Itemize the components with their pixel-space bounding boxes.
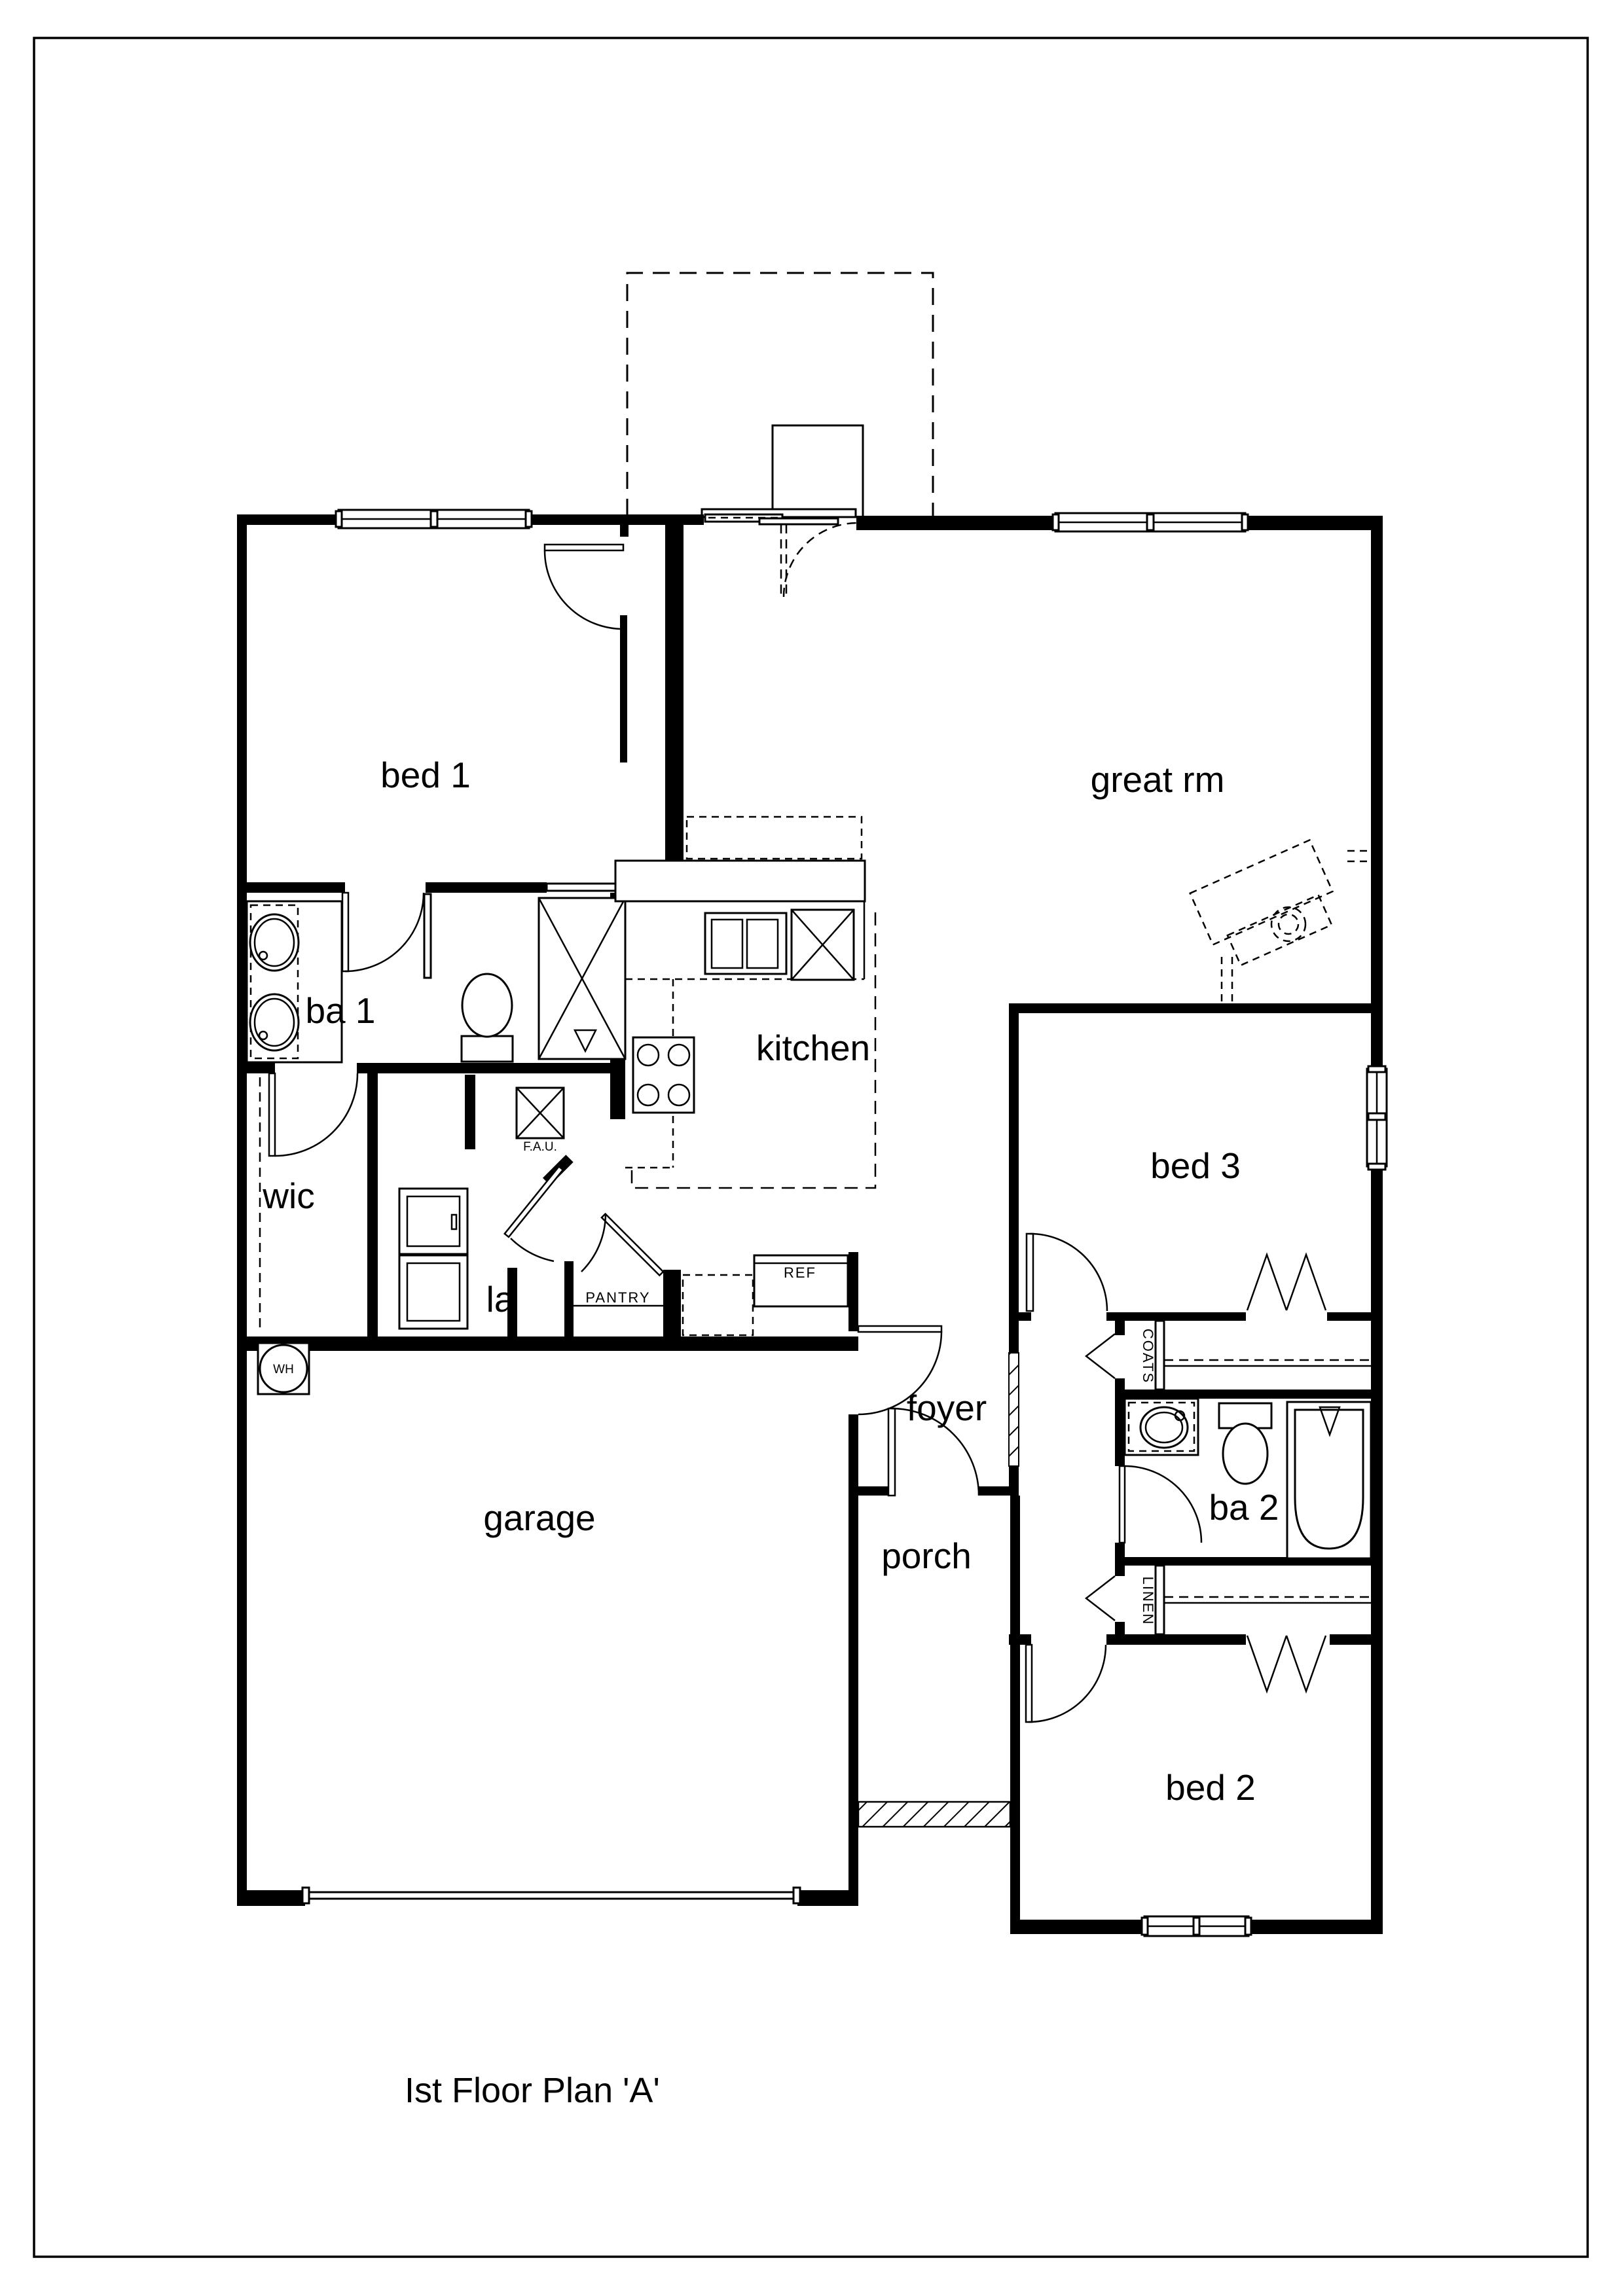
label-fau: F.A.U. — [523, 1140, 557, 1154]
wall-bed3-bottom — [1009, 1312, 1031, 1321]
bifold-bed3-closet — [1247, 1255, 1326, 1310]
kitchen-sink — [705, 913, 786, 974]
ba1-toilet — [462, 974, 513, 1062]
fireplace-optional — [1190, 840, 1371, 1003]
cased-opening-hatched — [1009, 1353, 1019, 1466]
rear-sliding-door — [705, 514, 858, 597]
door-nook-rear — [545, 545, 623, 629]
kitchen-range — [633, 1037, 694, 1113]
wall-coats — [1115, 1378, 1125, 1390]
wall-linen — [1115, 1622, 1125, 1634]
bifold-coats — [1086, 1334, 1115, 1378]
exterior-wall-left — [237, 514, 247, 1906]
wall-ba1-bottom — [247, 1063, 275, 1073]
exterior-wall — [856, 516, 1058, 530]
exterior-wall-right — [1371, 1166, 1383, 1934]
label-bed3: bed 3 — [1150, 1145, 1241, 1186]
wall-stub-nook — [620, 615, 627, 762]
exterior-wall-bed2-bottom — [1010, 1920, 1147, 1934]
ba2-toilet — [1219, 1403, 1271, 1484]
door-bed3 — [1027, 1234, 1107, 1311]
wall-linen — [1115, 1566, 1125, 1576]
washer-dryer — [399, 1189, 467, 1329]
ba1-vanity — [247, 901, 342, 1062]
window-bed1 — [336, 510, 532, 528]
label-bed2: bed 2 — [1165, 1767, 1256, 1808]
garage-door — [302, 1888, 800, 1903]
floor-plan-drawing: bed 1 great rm ba 1 kitchen wic la bed 3… — [0, 0, 1623, 2296]
label-ba1: ba 1 — [305, 990, 375, 1031]
label-ba2: ba 2 — [1209, 1487, 1279, 1528]
wall-garage-top — [247, 1336, 858, 1351]
window-bed3 — [1367, 1066, 1387, 1170]
label-wic: wic — [262, 1175, 314, 1216]
label-ref: REF — [784, 1265, 816, 1281]
exterior-wall-garage-bottom — [797, 1890, 858, 1906]
refrigerator — [683, 1255, 848, 1335]
label-la: la — [486, 1279, 515, 1319]
ref-recess-dashed — [683, 1275, 753, 1335]
fau-unit — [517, 1088, 564, 1138]
label-linen: LINEN — [1140, 1577, 1156, 1626]
wall-bed2-top — [1330, 1634, 1371, 1645]
kitchen-counters — [615, 817, 865, 1168]
window-bed2 — [1142, 1916, 1251, 1936]
wall-bed3-top — [1013, 1003, 1371, 1013]
exterior-wall — [1245, 516, 1383, 530]
label-porch: porch — [881, 1535, 972, 1576]
bifold-linen — [1086, 1576, 1115, 1621]
label-foyer: foyer — [907, 1388, 987, 1428]
door-bed1-ba1 — [342, 893, 431, 978]
plan-title: Ist Floor Plan 'A' — [405, 2071, 660, 2110]
door-la — [505, 1166, 563, 1261]
wall-bed3-bottom — [1106, 1312, 1246, 1321]
ba1-shower — [539, 884, 625, 1059]
floor-plan-page: bed 1 great rm ba 1 kitchen wic la bed 3… — [0, 0, 1623, 2296]
wall-bed1-bottom — [426, 882, 547, 893]
ba2-tub — [1287, 1402, 1371, 1558]
label-great-rm: great rm — [1091, 759, 1225, 800]
door-bed2 — [1026, 1645, 1106, 1722]
kitchen-upper-cabs-dashed — [687, 817, 862, 859]
wall-coats — [1115, 1321, 1125, 1335]
wall-bed1-bottom — [247, 882, 345, 893]
wall-foyer-front — [979, 1486, 1009, 1496]
exterior-wall-right — [1371, 516, 1383, 1069]
kitchen-bar-counter — [615, 861, 865, 901]
wall-bed1-right — [665, 524, 684, 893]
wall-pantry-left — [564, 1261, 574, 1336]
door-ba2 — [1120, 1466, 1201, 1543]
label-bed1: bed 1 — [380, 755, 471, 795]
label-coats: COATS — [1140, 1329, 1156, 1384]
label-pantry: PANTRY — [585, 1289, 650, 1306]
ba2-vanity — [1125, 1399, 1198, 1455]
door-pantry — [581, 1214, 663, 1276]
wall-hall-west — [1009, 1003, 1019, 1353]
door-wic — [269, 1073, 357, 1156]
wall-foyer-front — [858, 1486, 888, 1496]
wall-garage-right — [848, 1414, 858, 1890]
wall-jamb — [620, 524, 629, 537]
wall-ba2-top — [1115, 1390, 1371, 1399]
label-wh: WH — [273, 1363, 294, 1376]
wall-bed3-bottom — [1327, 1312, 1371, 1321]
wall-bed2-top — [1009, 1634, 1031, 1645]
wall-wic-la — [367, 1073, 378, 1336]
wall-pantry-right — [663, 1270, 681, 1336]
wall-hall-west — [1009, 1466, 1019, 1496]
shower-glass-door — [547, 884, 618, 891]
exterior-wall-bed2-bottom — [1246, 1920, 1383, 1934]
wall-garage-right — [848, 1252, 858, 1331]
rear-stoop — [773, 425, 863, 517]
porch-step-hatched — [858, 1802, 1010, 1827]
wall-bed2-left — [1010, 1496, 1020, 1920]
exterior-wall — [237, 514, 341, 525]
label-kitchen: kitchen — [756, 1028, 870, 1068]
wall-ba1-bottom — [357, 1063, 610, 1073]
exterior-wall-garage-bottom — [237, 1890, 305, 1906]
bifold-bed2-closet — [1247, 1636, 1326, 1691]
wall-bed2-top — [1106, 1634, 1246, 1645]
wall-ba2-left — [1115, 1399, 1125, 1466]
label-garage: garage — [483, 1498, 595, 1538]
exterior-wall — [526, 514, 704, 525]
window-great-rm — [1053, 513, 1248, 531]
wall-fau-closet — [465, 1075, 475, 1149]
